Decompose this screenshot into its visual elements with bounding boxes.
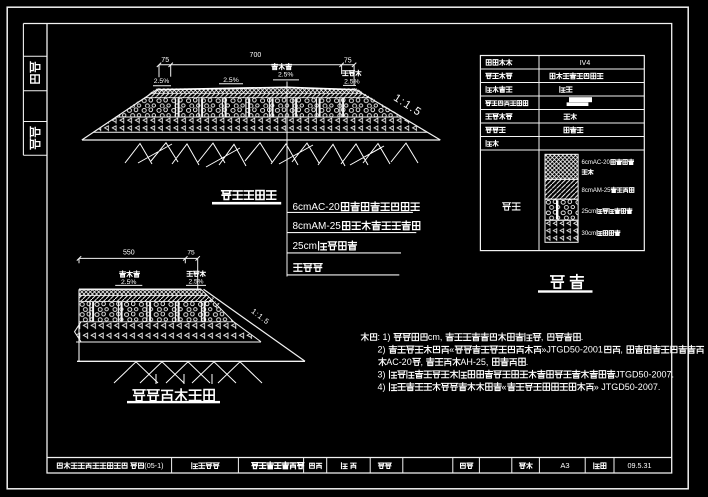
svg-text:8cmAM-25: 8cmAM-25 (582, 188, 612, 194)
svg-text:.: . (526, 357, 529, 367)
svg-text:2.5%: 2.5% (223, 77, 239, 84)
svg-text:75: 75 (344, 58, 352, 65)
svg-text:2.5%: 2.5% (188, 279, 203, 286)
svg-text:6cmAC-20: 6cmAC-20 (293, 202, 341, 213)
svg-text:09.5.31: 09.5.31 (628, 461, 652, 470)
svg-text:.: . (581, 332, 584, 342)
svg-text:IV4: IV4 (580, 60, 591, 67)
svg-text:(05-1): (05-1) (144, 461, 163, 470)
svg-text:«: « (449, 345, 454, 355)
svg-text:2.5%: 2.5% (344, 78, 360, 85)
svg-text:: 1): : 1) (378, 332, 391, 342)
svg-text:4): 4) (378, 382, 386, 392)
svg-text:25cm: 25cm (293, 241, 317, 252)
svg-text:» JTGD50-2007.: » JTGD50-2007. (594, 382, 661, 392)
svg-text:,: , (541, 332, 544, 342)
svg-text:»JTGD50-2001: »JTGD50-2001 (541, 345, 603, 355)
svg-text:75: 75 (187, 250, 195, 257)
svg-text:2.5%: 2.5% (121, 279, 137, 286)
svg-text:cm,: cm, (428, 332, 443, 342)
svg-text:,: , (421, 357, 424, 367)
svg-text:2.5%: 2.5% (154, 78, 170, 85)
svg-text:AC-20: AC-20 (386, 357, 412, 367)
svg-text:«: « (502, 382, 507, 392)
svg-text:3): 3) (378, 369, 386, 379)
svg-text:8cmAM-25: 8cmAM-25 (293, 221, 342, 232)
svg-text:2): 2) (378, 345, 386, 355)
svg-text:JTGD50-2007.: JTGD50-2007. (615, 369, 674, 379)
svg-text:30cm: 30cm (582, 231, 597, 237)
svg-text:2.5%: 2.5% (278, 71, 294, 78)
svg-text:A3: A3 (560, 461, 569, 470)
svg-text:550: 550 (123, 250, 135, 257)
svg-text:6cmAC-20: 6cmAC-20 (582, 160, 611, 166)
svg-text:700: 700 (250, 52, 262, 59)
svg-text:75: 75 (161, 57, 169, 64)
svg-text:AH-25,: AH-25, (460, 357, 488, 367)
svg-text:25cm: 25cm (582, 209, 597, 215)
svg-text:,: , (620, 345, 623, 355)
